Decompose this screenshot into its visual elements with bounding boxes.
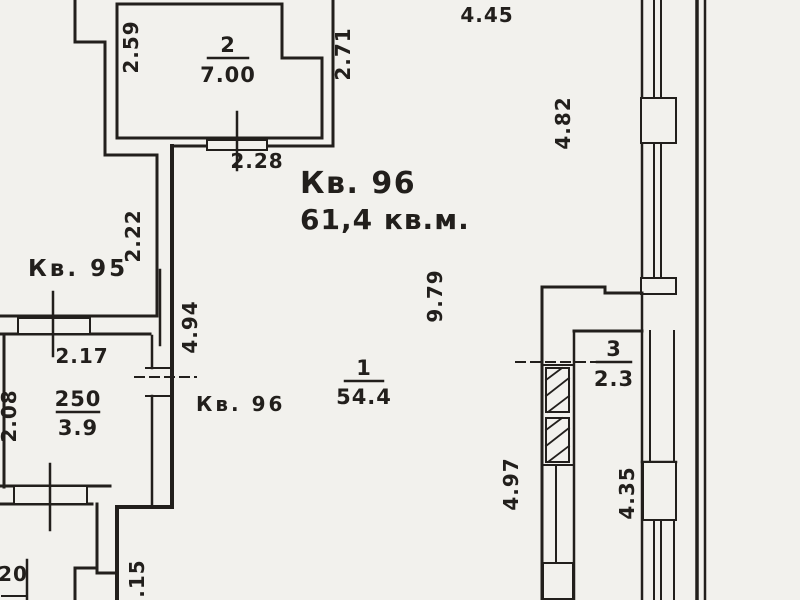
dim-20: 20 [0, 562, 28, 586]
room2-area: 7.00 [200, 63, 256, 87]
window-right-top [641, 98, 676, 143]
room2-number: 2 [220, 33, 236, 57]
dim-4-94: 4.94 [178, 300, 202, 353]
floor-plan-canvas: Кв. 96 61,4 кв.м. Кв. 95 Кв. 96 2 7.00 1… [0, 0, 800, 600]
dim-4-97: 4.97 [499, 457, 523, 510]
small-room-value-top: 250 [55, 387, 102, 411]
dim-2-08: 2.08 [0, 389, 21, 442]
paper-background [0, 0, 800, 600]
window-balcony-bottom [543, 563, 573, 599]
room3-number: 3 [606, 337, 622, 361]
dim-2-15: 2.15 [125, 559, 149, 600]
dim-2-28: 2.28 [230, 149, 283, 173]
room1-area: 54.4 [336, 385, 392, 409]
kv96-pointer-label: Кв. 96 [196, 392, 285, 416]
dim-4-45: 4.45 [460, 3, 513, 27]
dim-9-79: 9.79 [423, 269, 447, 322]
floor-plan-page: Кв. 96 61,4 кв.м. Кв. 95 Кв. 96 2 7.00 1… [0, 0, 800, 600]
window-right-mid [641, 278, 676, 294]
room3-area: 2.3 [594, 367, 634, 391]
apartment-title: Кв. 96 [300, 166, 416, 201]
room1-number: 1 [356, 356, 372, 380]
small-room-value-bottom: 3.9 [58, 416, 98, 440]
dim-2-71: 2.71 [331, 27, 355, 80]
dim-4-35: 4.35 [615, 466, 639, 519]
window-right-lower [643, 462, 676, 520]
apartment-area-title: 61,4 кв.м. [300, 203, 470, 236]
neighbor-apartment-label: Кв. 95 [28, 256, 128, 282]
dim-2-22: 2.22 [121, 209, 145, 262]
dim-4-82: 4.82 [551, 96, 575, 149]
dim-2-59: 2.59 [119, 20, 143, 73]
dim-2-17: 2.17 [55, 344, 108, 368]
